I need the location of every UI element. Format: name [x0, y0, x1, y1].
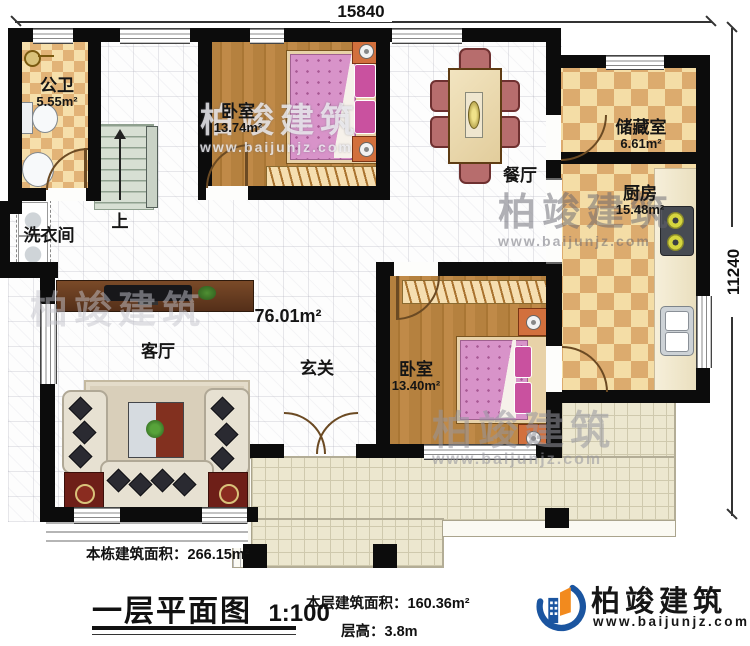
window: [696, 296, 712, 368]
stair-arrow-line: [119, 138, 121, 200]
porch: [252, 520, 442, 566]
window: [202, 507, 247, 524]
window: [392, 28, 462, 44]
wall-left-outer: [8, 28, 22, 214]
room-name: 厨房: [616, 184, 664, 203]
stair-arrow-head: [114, 129, 126, 139]
room-label-bedroom-bottom: 卧室 13.40m²: [392, 360, 440, 394]
building-area-text: 本栋建筑面积：266.15m²: [86, 543, 250, 564]
sink-basin: [665, 332, 689, 352]
dimension-right-label: 11240: [724, 227, 744, 317]
window: [424, 444, 536, 460]
bed-pillow: [514, 382, 532, 414]
room-area: 13.40m²: [392, 379, 440, 394]
wall-entry-right: [356, 444, 376, 458]
window: [606, 55, 664, 70]
bed-sheet-fold: [334, 54, 354, 158]
room-label-foyer: 玄关: [300, 359, 334, 378]
title-underline-thin: [92, 634, 296, 635]
nightstand: [518, 308, 548, 336]
window: [40, 304, 57, 384]
tv: [104, 285, 192, 301]
brand-logo: 柏竣建筑 www.baijunjz.com: [533, 574, 733, 638]
plan-title-row: 一层平面图 1:100: [92, 586, 330, 630]
shower-icon: [24, 50, 41, 67]
title-underline-thick: [92, 626, 296, 630]
room-name: 卧室: [392, 360, 440, 379]
wall-bedroom-top-right: [376, 28, 390, 200]
room-area: 15.48m²: [616, 203, 664, 218]
floor-plan-page: 柏竣建筑 www.baijunjz.com 柏竣建筑 www.baijunjz.…: [0, 0, 750, 646]
room-label-kitchen: 厨房 15.48m²: [616, 184, 664, 218]
room-label-bedroom-top: 卧室 13.74m²: [214, 102, 262, 136]
room-name: 玄关: [300, 359, 334, 378]
shower-arm: [38, 55, 54, 57]
terrace-column: [545, 508, 569, 528]
floor-height-text: 层高：3.8m: [341, 620, 418, 641]
door-leaf: [396, 276, 399, 318]
window: [74, 507, 120, 524]
floor-area-text: 本层建筑面积：160.36m²: [306, 592, 470, 613]
room-area: 13.74m²: [214, 121, 262, 136]
wall-bedroom-bottom-left: [376, 262, 390, 458]
stair-rail: [146, 126, 158, 208]
door-gap: [394, 262, 438, 276]
room-name: 公卫: [36, 76, 77, 95]
stairs-direction: 上: [112, 212, 129, 231]
brand-logo-icon: [533, 576, 587, 641]
room-area: 6.61m²: [616, 137, 667, 152]
wall-entry-left: [250, 444, 284, 458]
room-label-storage: 储藏室 6.61m²: [616, 118, 667, 152]
decor-plant: [198, 286, 216, 300]
door-gap: [206, 186, 248, 200]
room-label-dining: 餐厅: [503, 166, 537, 185]
room-name: 卧室: [214, 102, 262, 121]
room-name: 储藏室: [616, 118, 667, 137]
wall-bathroom-right: [88, 28, 101, 200]
window: [250, 28, 284, 44]
door-leaf: [84, 148, 87, 188]
dimension-top-label: 15840: [330, 2, 392, 22]
bed-pillow: [354, 100, 376, 134]
window: [33, 28, 73, 44]
room-label-laundry: 洗衣间: [24, 226, 75, 245]
room-name: 洗衣间: [24, 226, 75, 245]
brand-website: www.baijunjz.com: [593, 614, 750, 629]
door-leaf: [245, 144, 248, 186]
room-name: 客厅: [141, 342, 175, 361]
stairs-up-label: 上: [112, 212, 129, 231]
terrace-band: [252, 458, 674, 520]
room-label-bathroom: 公卫 5.55m²: [36, 76, 77, 110]
tv-stand: [138, 301, 158, 305]
table-lamp: [468, 101, 480, 129]
stove-burner: [667, 234, 684, 251]
level-area: 76.01m²: [254, 306, 321, 326]
level-area-label: 76.01m²: [254, 306, 321, 326]
room-name: 餐厅: [503, 166, 537, 185]
stove-burner: [667, 212, 684, 229]
corner-table-medallion: [219, 484, 239, 504]
corner-table-medallion: [75, 484, 95, 504]
door-gap: [546, 346, 562, 392]
kitchen-passage: [546, 178, 562, 264]
coffee-table-plant: [146, 420, 164, 438]
door-gap: [546, 115, 561, 160]
bed-pillow: [514, 346, 532, 378]
plan-title: 一层平面图: [92, 595, 252, 628]
room-label-living: 客厅: [141, 342, 175, 361]
porch-column: [373, 544, 397, 568]
room-area: 5.55m²: [36, 95, 77, 110]
window: [120, 28, 190, 44]
bed-pillow: [354, 64, 376, 98]
sink-basin: [665, 311, 689, 331]
